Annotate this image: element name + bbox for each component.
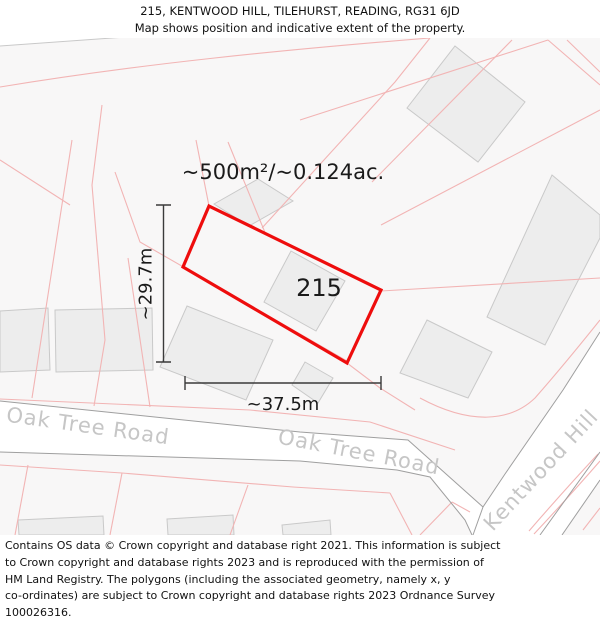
area-label: ~500m²/~0.124ac. (182, 160, 384, 184)
copyright-line: Contains OS data © Crown copyright and d… (5, 538, 597, 555)
width-dimension-label: ~37.5m (247, 394, 320, 415)
building (167, 515, 234, 535)
title-block: 215, KENTWOOD HILL, TILEHURST, READING, … (0, 2, 600, 37)
copyright-line: to Crown copyright and database rights 2… (5, 555, 597, 572)
page-subtitle: Map shows position and indicative extent… (0, 20, 600, 37)
plot-number-label: 215 (296, 274, 342, 302)
copyright-notice: Contains OS data © Crown copyright and d… (5, 538, 597, 622)
property-map: Oak Tree Road Oak Tree Road Kentwood Hil… (0, 38, 600, 535)
height-dimension-label: ~29.7m (136, 248, 157, 321)
copyright-line: co-ordinates) are subject to Crown copyr… (5, 588, 597, 605)
building (0, 308, 50, 372)
page-title: 215, KENTWOOD HILL, TILEHURST, READING, … (0, 2, 600, 20)
copyright-line: HM Land Registry. The polygons (includin… (5, 572, 597, 589)
copyright-line: 100026316. (5, 605, 597, 622)
